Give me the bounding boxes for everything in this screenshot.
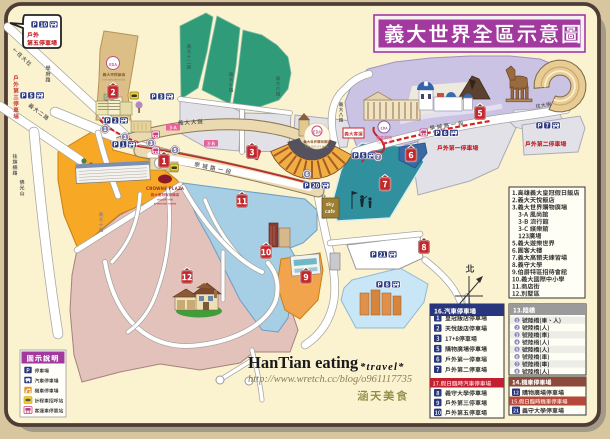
svg-text:http://www.wretch.cc/blog/o961: http://www.wretch.cc/blog/o961117735 bbox=[248, 374, 412, 385]
svg-text:*travel*: *travel* bbox=[360, 362, 405, 373]
svg-text:HanTian eating: HanTian eating bbox=[248, 353, 359, 372]
